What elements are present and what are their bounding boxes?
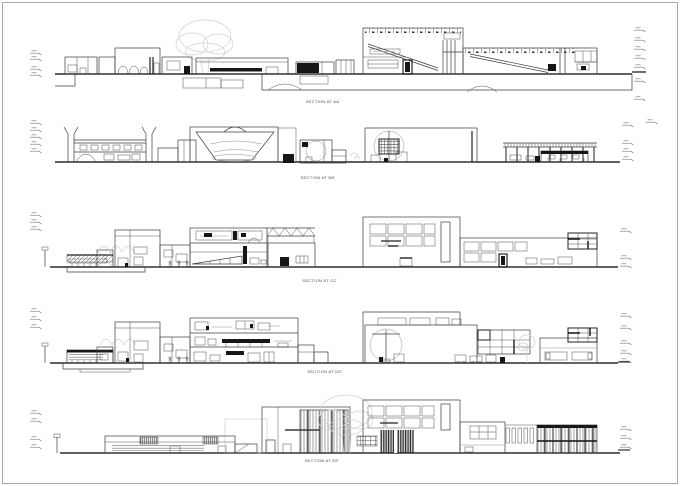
level-markers-right-ee xyxy=(618,427,632,450)
section-label-aa: SECTION AT AA' xyxy=(306,99,341,104)
section-drawing-ee xyxy=(0,0,680,486)
low-building-ee xyxy=(105,436,257,453)
section-label-cc: SECTION AT CC' xyxy=(302,278,337,283)
flag-pole-ee xyxy=(54,434,60,453)
louvred-building-ee xyxy=(262,407,350,453)
right-mid-building-ee xyxy=(460,422,537,453)
drawing-sheet: SECTION AT AA' SECTION AT BB' SECTION AT… xyxy=(0,0,680,486)
colonnade-ee xyxy=(537,425,597,453)
section-label-ee: SECTION AT EE' xyxy=(305,458,340,463)
section-label-dd: SECTION AT DD' xyxy=(307,369,342,374)
right-tall-building-ee xyxy=(357,400,460,453)
section-label-bb: SECTION AT BB' xyxy=(301,175,336,180)
level-markers-left-ee xyxy=(30,411,42,449)
